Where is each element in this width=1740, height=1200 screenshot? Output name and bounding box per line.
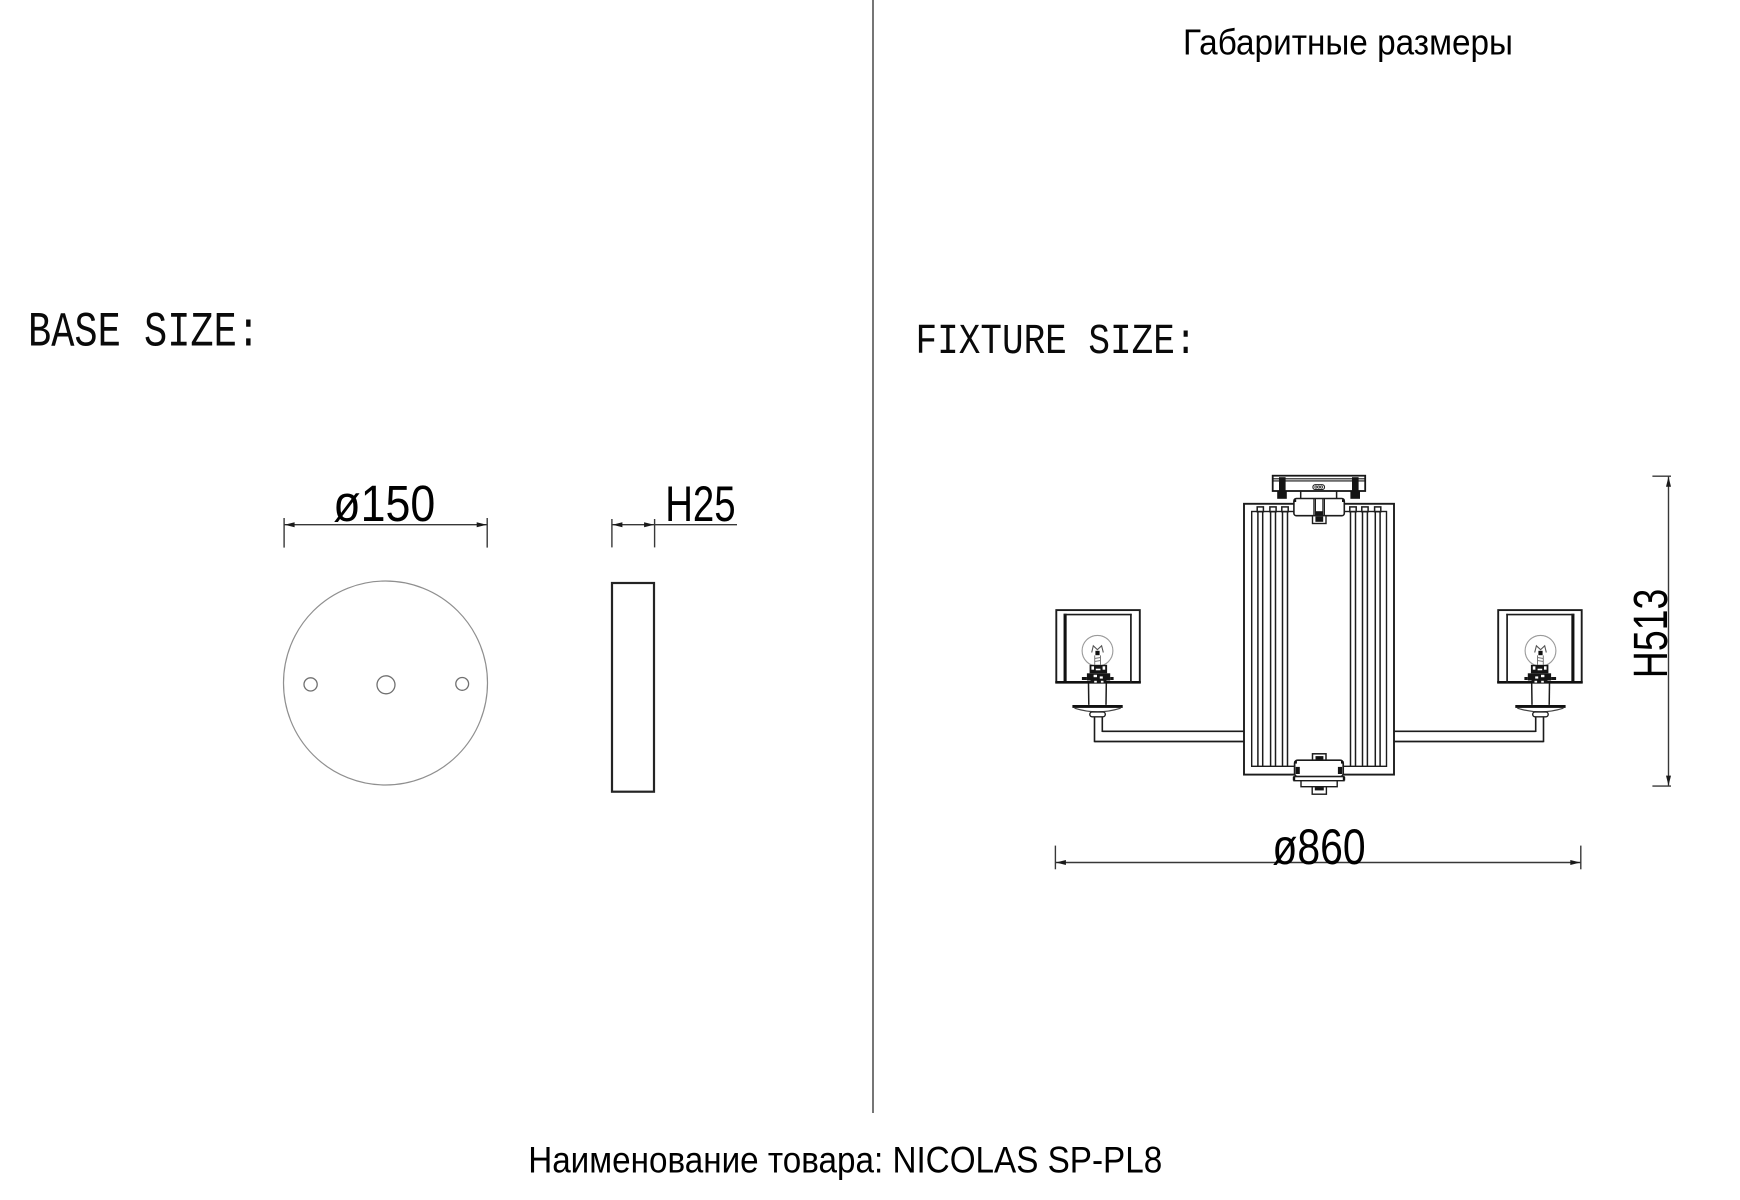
svg-text:FIXTURE SIZE:: FIXTURE SIZE:: [916, 317, 1197, 366]
svg-text:ø860: ø860: [1272, 819, 1365, 875]
svg-text:BASE SIZE:: BASE SIZE:: [28, 305, 260, 361]
svg-text:H513: H513: [1625, 589, 1679, 678]
svg-text:H25: H25: [665, 476, 735, 532]
svg-text:ø150: ø150: [333, 475, 435, 532]
svg-text:Габаритные размеры: Габаритные размеры: [1183, 22, 1513, 63]
svg-text:Наименование товара: NICOLAS S: Наименование товара: NICOLAS SP-PL8: [528, 1139, 1162, 1180]
